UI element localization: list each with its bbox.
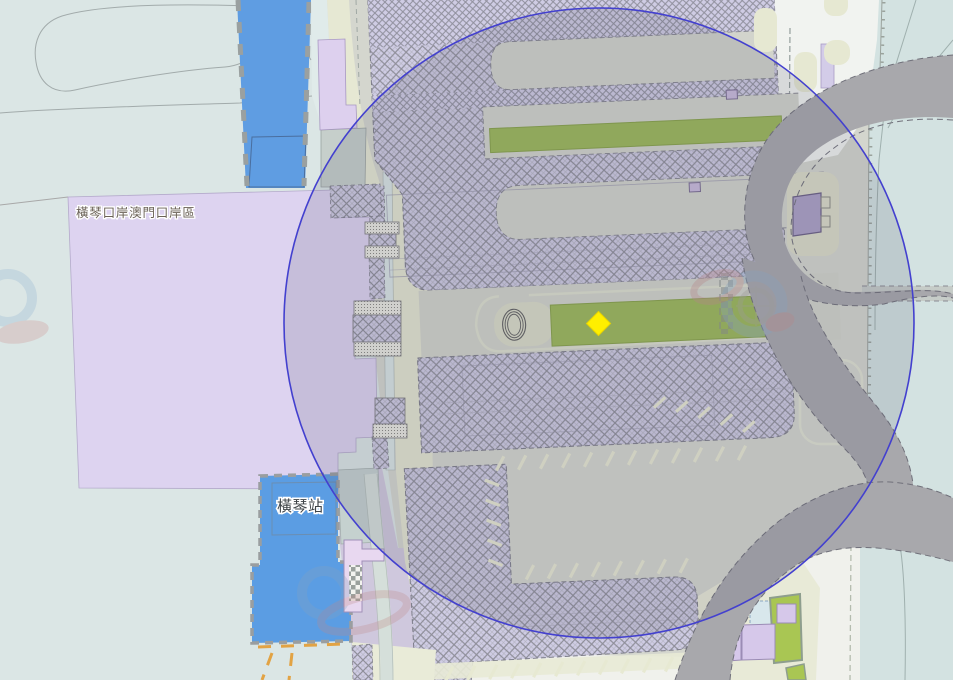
svg-text:橫琴口岸澳門口岸區: 橫琴口岸澳門口岸區 xyxy=(76,206,196,220)
svg-text:橫琴站: 橫琴站 xyxy=(277,498,324,515)
